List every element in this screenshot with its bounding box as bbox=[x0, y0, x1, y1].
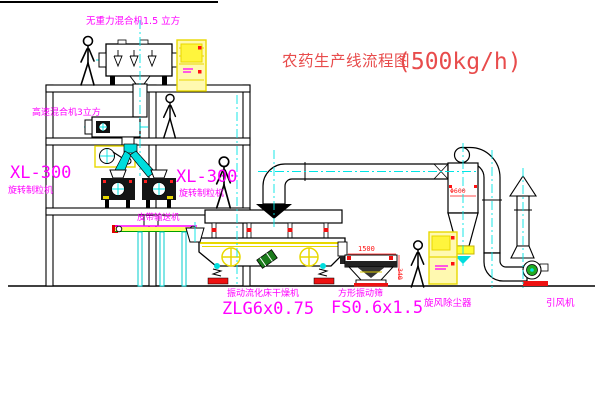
cyclone-diameter-dimension: Φ600 bbox=[450, 187, 466, 195]
sieve-height-dimension: 340 bbox=[396, 268, 404, 280]
induced-draft-fan bbox=[523, 261, 548, 286]
indicator-light-icon bbox=[198, 46, 202, 50]
flow-diagram: 无重力混合机1.5 立方 农药生产线流程图 (500kg/h) 高速混合机3立方… bbox=[0, 0, 600, 403]
granulator-right-name-label: 旋转制粒机 bbox=[179, 187, 224, 199]
indicator-light-icon bbox=[451, 262, 455, 266]
sieve-model-label: FS0.6x1.5 bbox=[331, 298, 423, 318]
fluid-bed-dryer bbox=[186, 210, 345, 284]
granulator-left-name-label: 旋转制粒机 bbox=[8, 184, 53, 196]
title-capacity: (500kg/h) bbox=[397, 49, 522, 75]
cyclone-separator bbox=[448, 148, 527, 282]
gravity-mixer-label: 无重力混合机1.5 立方 bbox=[86, 15, 180, 27]
page-title: 农药生产线流程图 bbox=[282, 52, 410, 70]
granulator-left-model-label: XL-300 bbox=[10, 163, 71, 183]
dryer-model-label: ZLG6x0.75 bbox=[222, 299, 314, 319]
high-speed-mixer-label: 高速混合机3立方 bbox=[32, 106, 101, 118]
cyclone-label: 旋风除尘器 bbox=[424, 297, 472, 309]
sieve-length-dimension: 1500 bbox=[358, 245, 375, 253]
person-figure bbox=[411, 241, 423, 287]
indicator-light-icon bbox=[198, 70, 202, 74]
fan-label: 引风机 bbox=[546, 297, 575, 309]
granulator-right-model-label: XL-300 bbox=[176, 167, 237, 187]
person-figure bbox=[81, 37, 94, 86]
dryer-name-label: 振动流化床干燥机 bbox=[227, 287, 299, 299]
person-figure bbox=[164, 94, 176, 138]
control-cabinet-right bbox=[429, 232, 457, 284]
granulator-left bbox=[101, 170, 135, 208]
diagram-canvas: 无重力混合机1.5 立方 农药生产线流程图 (500kg/h) 高速混合机3立方… bbox=[0, 0, 600, 403]
control-cabinet-top bbox=[177, 40, 206, 91]
belt-conveyor-label: 皮带输送机 bbox=[137, 212, 180, 223]
indicator-light-icon bbox=[451, 236, 455, 240]
